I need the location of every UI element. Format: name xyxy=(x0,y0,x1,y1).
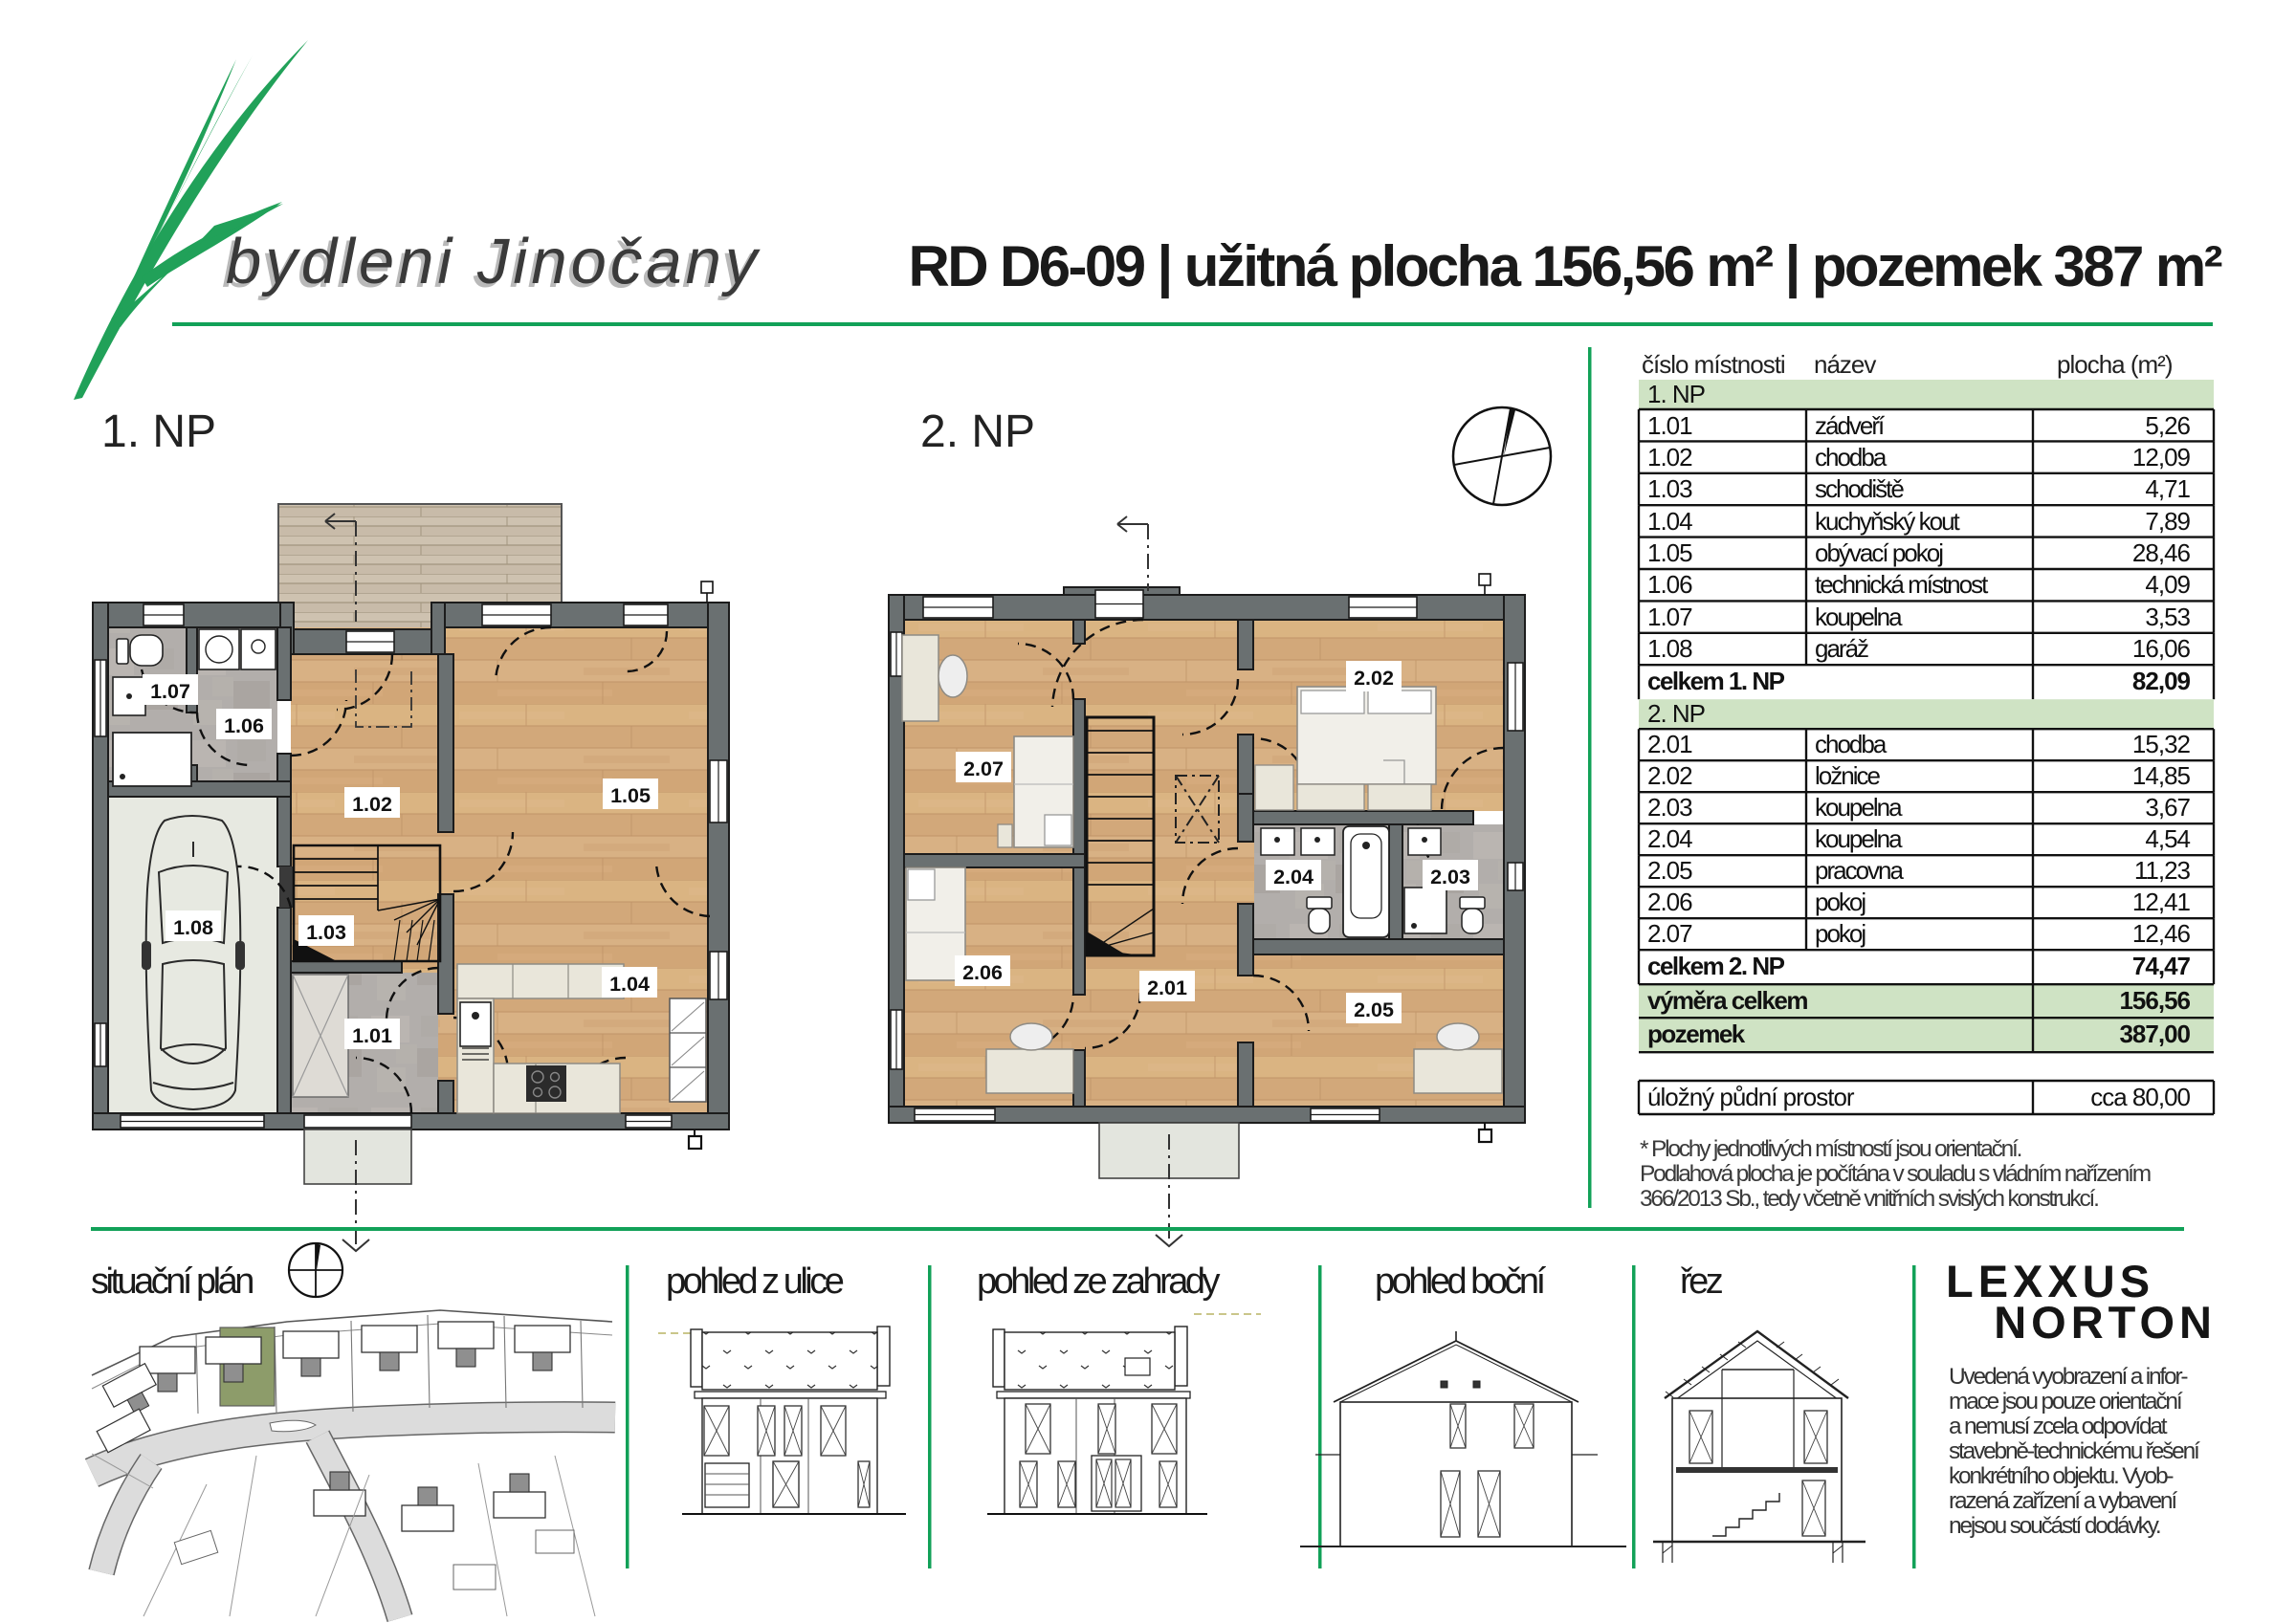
svg-text:1. NP: 1. NP xyxy=(1647,380,1705,408)
svg-text:pohled z ulice: pohled z ulice xyxy=(666,1261,844,1302)
svg-text:1.01: 1.01 xyxy=(352,1024,392,1047)
svg-text:pohled ze zahrady: pohled ze zahrady xyxy=(977,1261,1221,1302)
svg-text:28,46: 28,46 xyxy=(2132,538,2191,567)
svg-text:Uvedená vyobrazení a infor-: Uvedená vyobrazení a infor- xyxy=(1949,1364,2188,1390)
svg-text:7,89: 7,89 xyxy=(2145,507,2190,536)
svg-text:konkrétního objektu. Vyob-: konkrétního objektu. Vyob- xyxy=(1949,1463,2174,1489)
svg-text:kuchyňský kout: kuchyňský kout xyxy=(1815,507,1961,536)
svg-text:387,00: 387,00 xyxy=(2119,1020,2190,1048)
svg-text:mace jsou pouze orientační: mace jsou pouze orientační xyxy=(1949,1389,2183,1415)
svg-text:číslo místnosti: číslo místnosti xyxy=(1642,350,1785,379)
svg-text:2.03: 2.03 xyxy=(1647,793,1692,822)
svg-text:zádveří: zádveří xyxy=(1815,411,1886,440)
svg-text:technická místnost: technická místnost xyxy=(1815,570,1989,599)
svg-text:koupelna: koupelna xyxy=(1815,793,1903,822)
svg-text:chodba: chodba xyxy=(1815,443,1888,472)
svg-text:16,06: 16,06 xyxy=(2132,634,2191,663)
svg-text:82,09: 82,09 xyxy=(2132,667,2191,695)
svg-text:4,09: 4,09 xyxy=(2145,570,2190,599)
svg-text:2. NP: 2. NP xyxy=(1647,699,1705,728)
svg-text:4,71: 4,71 xyxy=(2145,474,2190,503)
svg-text:15,32: 15,32 xyxy=(2132,730,2191,758)
svg-text:stavebně-technickému řešení: stavebně-technickému řešení xyxy=(1949,1438,2200,1464)
svg-text:název: název xyxy=(1814,350,1876,379)
svg-text:bydleni Jinočany: bydleni Jinočany xyxy=(226,226,761,297)
svg-text:1.08: 1.08 xyxy=(173,916,213,939)
svg-text:pokoj: pokoj xyxy=(1815,919,1865,948)
svg-text:chodba: chodba xyxy=(1815,730,1888,758)
svg-text:koupelna: koupelna xyxy=(1815,824,1903,853)
svg-text:a nemusí zcela odpovídat: a nemusí zcela odpovídat xyxy=(1949,1414,2168,1439)
svg-text:2.05: 2.05 xyxy=(1354,998,1394,1021)
svg-text:1.04: 1.04 xyxy=(1647,507,1692,536)
svg-text:schodiště: schodiště xyxy=(1815,474,1904,503)
svg-text:2.07: 2.07 xyxy=(1647,919,1692,948)
svg-text:pokoj: pokoj xyxy=(1815,888,1865,916)
svg-text:3,53: 3,53 xyxy=(2145,603,2190,631)
svg-text:156,56: 156,56 xyxy=(2119,986,2190,1015)
svg-text:řez: řez xyxy=(1680,1261,1723,1302)
svg-text:úložný půdní prostor: úložný půdní prostor xyxy=(1647,1083,1855,1111)
svg-text:366/2013 Sb., tedy včetně vnit: 366/2013 Sb., tedy včetně vnitřních svis… xyxy=(1640,1186,2098,1212)
svg-text:1. NP: 1. NP xyxy=(101,406,216,457)
svg-text:14,85: 14,85 xyxy=(2132,761,2191,790)
svg-text:1.07: 1.07 xyxy=(150,680,190,703)
svg-text:1.06: 1.06 xyxy=(1647,570,1692,599)
svg-text:nejsou součástí dodávky.: nejsou součástí dodávky. xyxy=(1949,1513,2160,1539)
svg-text:1.02: 1.02 xyxy=(1647,443,1692,472)
svg-text:celkem 1. NP: celkem 1. NP xyxy=(1647,667,1785,695)
svg-text:11,23: 11,23 xyxy=(2134,856,2191,885)
svg-text:12,46: 12,46 xyxy=(2132,919,2191,948)
svg-text:3,67: 3,67 xyxy=(2145,793,2190,822)
svg-text:Podlahová plocha je počítána v: Podlahová plocha je počítána v souladu s… xyxy=(1640,1161,2151,1187)
svg-text:cca 80,00: cca 80,00 xyxy=(2090,1083,2190,1111)
svg-text:1.02: 1.02 xyxy=(352,793,392,816)
svg-text:74,47: 74,47 xyxy=(2132,952,2191,980)
svg-text:2. NP: 2. NP xyxy=(920,406,1035,457)
svg-text:1.08: 1.08 xyxy=(1647,634,1692,663)
svg-text:2.02: 2.02 xyxy=(1354,667,1394,690)
svg-text:1.06: 1.06 xyxy=(224,714,264,737)
svg-text:RD D6-09 | užitná plocha 156,5: RD D6-09 | užitná plocha 156,56 m² | poz… xyxy=(909,234,2222,299)
svg-text:koupelna: koupelna xyxy=(1815,603,1903,631)
svg-text:2.06: 2.06 xyxy=(1647,888,1692,916)
svg-text:2.01: 2.01 xyxy=(1147,976,1187,999)
svg-text:pohled boční: pohled boční xyxy=(1375,1261,1547,1302)
svg-text:NORTON: NORTON xyxy=(1994,1297,2217,1348)
svg-text:1.07: 1.07 xyxy=(1647,603,1692,631)
svg-text:1.01: 1.01 xyxy=(1647,411,1692,440)
svg-text:garáž: garáž xyxy=(1815,634,1868,663)
svg-text:4,54: 4,54 xyxy=(2145,824,2190,853)
svg-text:pracovna: pracovna xyxy=(1815,856,1904,885)
svg-text:2.07: 2.07 xyxy=(963,757,1004,780)
svg-text:ložnice: ložnice xyxy=(1815,761,1880,790)
svg-text:obývací pokoj: obývací pokoj xyxy=(1815,538,1943,567)
svg-text:1.03: 1.03 xyxy=(306,921,346,944)
svg-text:2.04: 2.04 xyxy=(1273,866,1314,888)
svg-text:razená zařízení a vybavení: razená zařízení a vybavení xyxy=(1949,1488,2177,1514)
svg-text:situační plán: situační plán xyxy=(91,1261,253,1302)
svg-text:1.05: 1.05 xyxy=(1647,538,1692,567)
svg-text:2.05: 2.05 xyxy=(1647,856,1692,885)
svg-text:1.03: 1.03 xyxy=(1647,474,1692,503)
svg-text:5,26: 5,26 xyxy=(2145,411,2190,440)
svg-text:2.01: 2.01 xyxy=(1647,730,1692,758)
svg-text:* Plochy jednotlivých místnost: * Plochy jednotlivých místností jsou ori… xyxy=(1640,1136,2021,1162)
svg-text:1.04: 1.04 xyxy=(609,973,650,996)
svg-text:2.03: 2.03 xyxy=(1430,866,1470,888)
svg-text:pozemek: pozemek xyxy=(1647,1020,1746,1048)
svg-text:1.05: 1.05 xyxy=(610,784,651,807)
svg-text:12,41: 12,41 xyxy=(2132,888,2191,916)
svg-text:2.02: 2.02 xyxy=(1647,761,1692,790)
svg-text:plocha (m²): plocha (m²) xyxy=(2057,350,2173,379)
svg-text:výměra celkem: výměra celkem xyxy=(1647,986,1807,1015)
svg-text:celkem 2. NP: celkem 2. NP xyxy=(1647,952,1785,980)
svg-text:12,09: 12,09 xyxy=(2132,443,2191,472)
svg-text:2.04: 2.04 xyxy=(1647,824,1692,853)
svg-text:2.06: 2.06 xyxy=(962,961,1003,984)
